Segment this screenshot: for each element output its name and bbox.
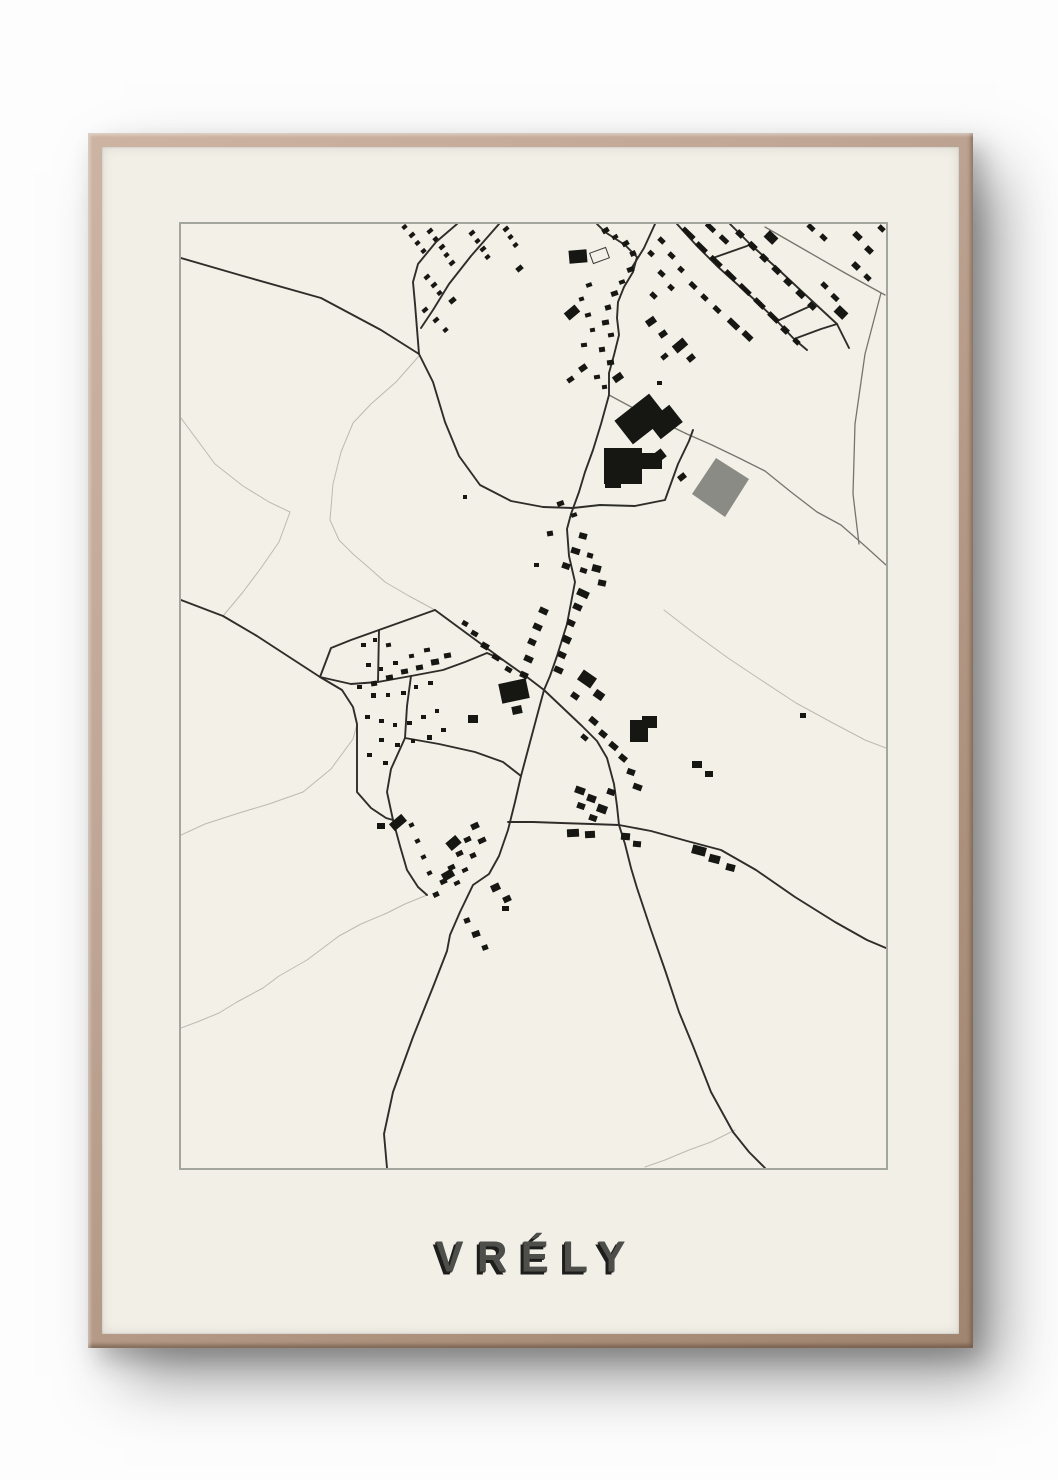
building bbox=[414, 240, 420, 246]
building bbox=[588, 814, 598, 822]
building bbox=[407, 721, 412, 725]
page-background: { "poster": { "title": "VRÉLY" }, "color… bbox=[0, 0, 1058, 1480]
building bbox=[852, 231, 863, 242]
road-dark bbox=[710, 246, 747, 259]
building bbox=[438, 244, 445, 251]
building bbox=[579, 296, 585, 301]
building bbox=[819, 233, 828, 241]
building bbox=[708, 854, 721, 865]
building bbox=[401, 224, 407, 230]
building bbox=[672, 338, 689, 354]
building bbox=[453, 880, 460, 886]
building bbox=[705, 771, 713, 777]
building bbox=[591, 564, 602, 573]
building bbox=[783, 277, 793, 287]
building bbox=[463, 495, 467, 499]
building bbox=[512, 242, 518, 248]
building bbox=[727, 317, 741, 330]
building bbox=[498, 678, 530, 703]
building bbox=[834, 305, 849, 320]
building bbox=[608, 333, 615, 338]
building bbox=[851, 261, 861, 271]
building bbox=[420, 854, 426, 860]
building bbox=[416, 664, 424, 670]
building bbox=[532, 622, 543, 631]
road-light bbox=[181, 724, 357, 835]
building bbox=[705, 224, 716, 233]
building bbox=[357, 685, 362, 689]
picture-frame: VRÉLY bbox=[88, 133, 973, 1348]
building bbox=[800, 713, 806, 718]
building bbox=[567, 829, 579, 838]
building bbox=[428, 681, 433, 685]
building bbox=[642, 716, 657, 728]
building bbox=[719, 234, 730, 245]
road-light bbox=[664, 610, 886, 748]
building bbox=[579, 567, 587, 574]
building bbox=[361, 643, 366, 647]
building bbox=[471, 930, 481, 938]
building bbox=[507, 234, 513, 240]
building bbox=[427, 735, 432, 740]
building bbox=[618, 753, 628, 763]
building bbox=[741, 330, 753, 342]
building bbox=[366, 663, 371, 667]
building bbox=[604, 304, 611, 310]
building bbox=[771, 265, 782, 276]
building bbox=[738, 283, 752, 296]
building bbox=[423, 274, 430, 281]
building bbox=[586, 552, 593, 558]
building bbox=[667, 251, 676, 259]
building bbox=[725, 863, 736, 872]
building bbox=[401, 691, 406, 695]
building bbox=[607, 360, 615, 366]
building bbox=[633, 841, 641, 848]
building bbox=[807, 301, 817, 311]
building bbox=[588, 716, 599, 726]
building bbox=[556, 500, 564, 507]
building bbox=[386, 693, 390, 697]
road-dark bbox=[631, 224, 655, 269]
building bbox=[599, 347, 606, 353]
map-panel bbox=[179, 222, 888, 1170]
building bbox=[610, 290, 618, 297]
building bbox=[365, 715, 370, 719]
poster-paper: VRÉLY bbox=[102, 147, 959, 1334]
building bbox=[863, 273, 872, 281]
road-light bbox=[330, 356, 435, 610]
building bbox=[688, 281, 697, 290]
building bbox=[484, 254, 490, 260]
road-light bbox=[181, 418, 290, 616]
building bbox=[657, 236, 666, 244]
building bbox=[393, 661, 398, 665]
road-mid bbox=[853, 293, 881, 544]
building bbox=[594, 375, 601, 380]
building bbox=[393, 723, 397, 727]
road-light bbox=[181, 895, 427, 1028]
road-dark bbox=[794, 324, 837, 339]
building bbox=[686, 353, 696, 363]
road-dark bbox=[508, 822, 886, 948]
building bbox=[572, 602, 583, 611]
building bbox=[395, 743, 400, 747]
road-dark bbox=[435, 610, 544, 690]
building bbox=[435, 709, 439, 713]
building bbox=[379, 719, 384, 723]
building bbox=[515, 264, 524, 272]
building bbox=[806, 224, 815, 232]
building bbox=[649, 291, 658, 299]
building bbox=[534, 563, 539, 567]
building bbox=[468, 715, 478, 723]
building bbox=[566, 375, 575, 383]
building bbox=[767, 311, 780, 324]
poster-title: VRÉLY bbox=[102, 1232, 959, 1282]
building bbox=[632, 783, 643, 792]
building bbox=[553, 665, 564, 674]
building bbox=[523, 654, 534, 663]
building bbox=[445, 835, 461, 851]
road-dark bbox=[378, 630, 379, 682]
building bbox=[426, 228, 433, 235]
building bbox=[444, 652, 452, 658]
building bbox=[538, 606, 549, 615]
building bbox=[667, 284, 675, 292]
building bbox=[421, 715, 426, 719]
building bbox=[443, 252, 449, 258]
building bbox=[590, 328, 596, 333]
building bbox=[474, 238, 480, 244]
building bbox=[468, 230, 475, 237]
building bbox=[424, 648, 431, 653]
building bbox=[621, 833, 631, 841]
building bbox=[576, 588, 590, 599]
building bbox=[585, 312, 592, 317]
building bbox=[431, 658, 440, 665]
road-dark bbox=[387, 738, 427, 895]
building bbox=[695, 241, 708, 254]
road-dark bbox=[421, 224, 499, 328]
building bbox=[574, 786, 586, 796]
building bbox=[608, 741, 619, 751]
building bbox=[408, 232, 415, 239]
building bbox=[577, 669, 597, 688]
building bbox=[598, 729, 608, 739]
building bbox=[576, 802, 586, 810]
building bbox=[585, 831, 595, 839]
building bbox=[547, 531, 554, 537]
building bbox=[442, 327, 448, 333]
building bbox=[441, 728, 446, 732]
building bbox=[511, 705, 522, 715]
building bbox=[502, 226, 509, 233]
building bbox=[657, 269, 666, 277]
building bbox=[647, 250, 655, 258]
building bbox=[581, 343, 587, 348]
building bbox=[463, 917, 470, 924]
building bbox=[386, 643, 392, 648]
building bbox=[724, 269, 737, 282]
building bbox=[477, 837, 486, 845]
building bbox=[502, 895, 512, 904]
building bbox=[470, 822, 480, 831]
building bbox=[411, 739, 415, 743]
building bbox=[602, 319, 610, 325]
building bbox=[463, 836, 471, 843]
building bbox=[426, 870, 432, 876]
building bbox=[448, 296, 457, 304]
building bbox=[621, 240, 630, 248]
building bbox=[578, 532, 587, 540]
building bbox=[432, 317, 439, 324]
building bbox=[502, 906, 509, 911]
road-dark bbox=[181, 600, 393, 820]
building bbox=[657, 381, 662, 385]
building bbox=[414, 838, 420, 844]
building bbox=[430, 282, 437, 289]
building bbox=[527, 638, 537, 647]
building bbox=[830, 293, 839, 302]
building bbox=[564, 305, 581, 321]
building bbox=[481, 944, 488, 951]
building bbox=[371, 681, 378, 687]
building bbox=[432, 891, 440, 898]
building bbox=[469, 852, 477, 859]
building bbox=[461, 620, 469, 627]
road-dark bbox=[405, 676, 411, 738]
building bbox=[448, 260, 455, 267]
building bbox=[820, 281, 829, 289]
building bbox=[753, 297, 766, 310]
building bbox=[586, 794, 597, 804]
building bbox=[626, 768, 636, 776]
building bbox=[421, 307, 428, 314]
building bbox=[658, 329, 668, 339]
building bbox=[864, 245, 874, 255]
building bbox=[561, 562, 571, 570]
building bbox=[660, 352, 669, 360]
building bbox=[877, 224, 886, 232]
building bbox=[712, 305, 721, 314]
building bbox=[367, 753, 372, 757]
building bbox=[612, 372, 624, 383]
building bbox=[371, 693, 376, 698]
building bbox=[379, 667, 383, 671]
building bbox=[692, 761, 702, 768]
building bbox=[596, 804, 608, 815]
building bbox=[568, 249, 587, 264]
building bbox=[593, 689, 606, 701]
building bbox=[597, 579, 606, 587]
building bbox=[409, 654, 415, 659]
outlined-building bbox=[590, 247, 610, 263]
field-parcel bbox=[692, 458, 749, 517]
building bbox=[677, 266, 685, 274]
building bbox=[570, 547, 580, 555]
building bbox=[578, 363, 588, 373]
building bbox=[401, 668, 409, 674]
building bbox=[681, 226, 695, 240]
building bbox=[373, 638, 377, 642]
building bbox=[377, 823, 385, 829]
road-dark bbox=[405, 738, 521, 776]
road-light bbox=[645, 1130, 735, 1167]
building bbox=[461, 867, 468, 873]
building bbox=[455, 850, 463, 857]
building bbox=[618, 279, 625, 285]
building bbox=[408, 822, 414, 828]
building bbox=[700, 293, 709, 301]
building bbox=[764, 230, 779, 245]
building bbox=[379, 738, 384, 742]
industrial-building bbox=[605, 474, 621, 488]
industrial-building bbox=[677, 472, 687, 482]
road-dark bbox=[544, 690, 765, 1168]
building bbox=[570, 691, 580, 701]
building bbox=[602, 385, 608, 390]
building bbox=[645, 316, 657, 327]
map-svg bbox=[181, 224, 886, 1168]
building bbox=[414, 685, 418, 689]
building bbox=[585, 282, 592, 288]
building bbox=[490, 882, 501, 892]
building bbox=[580, 733, 589, 741]
building bbox=[383, 761, 388, 765]
building bbox=[795, 289, 806, 300]
